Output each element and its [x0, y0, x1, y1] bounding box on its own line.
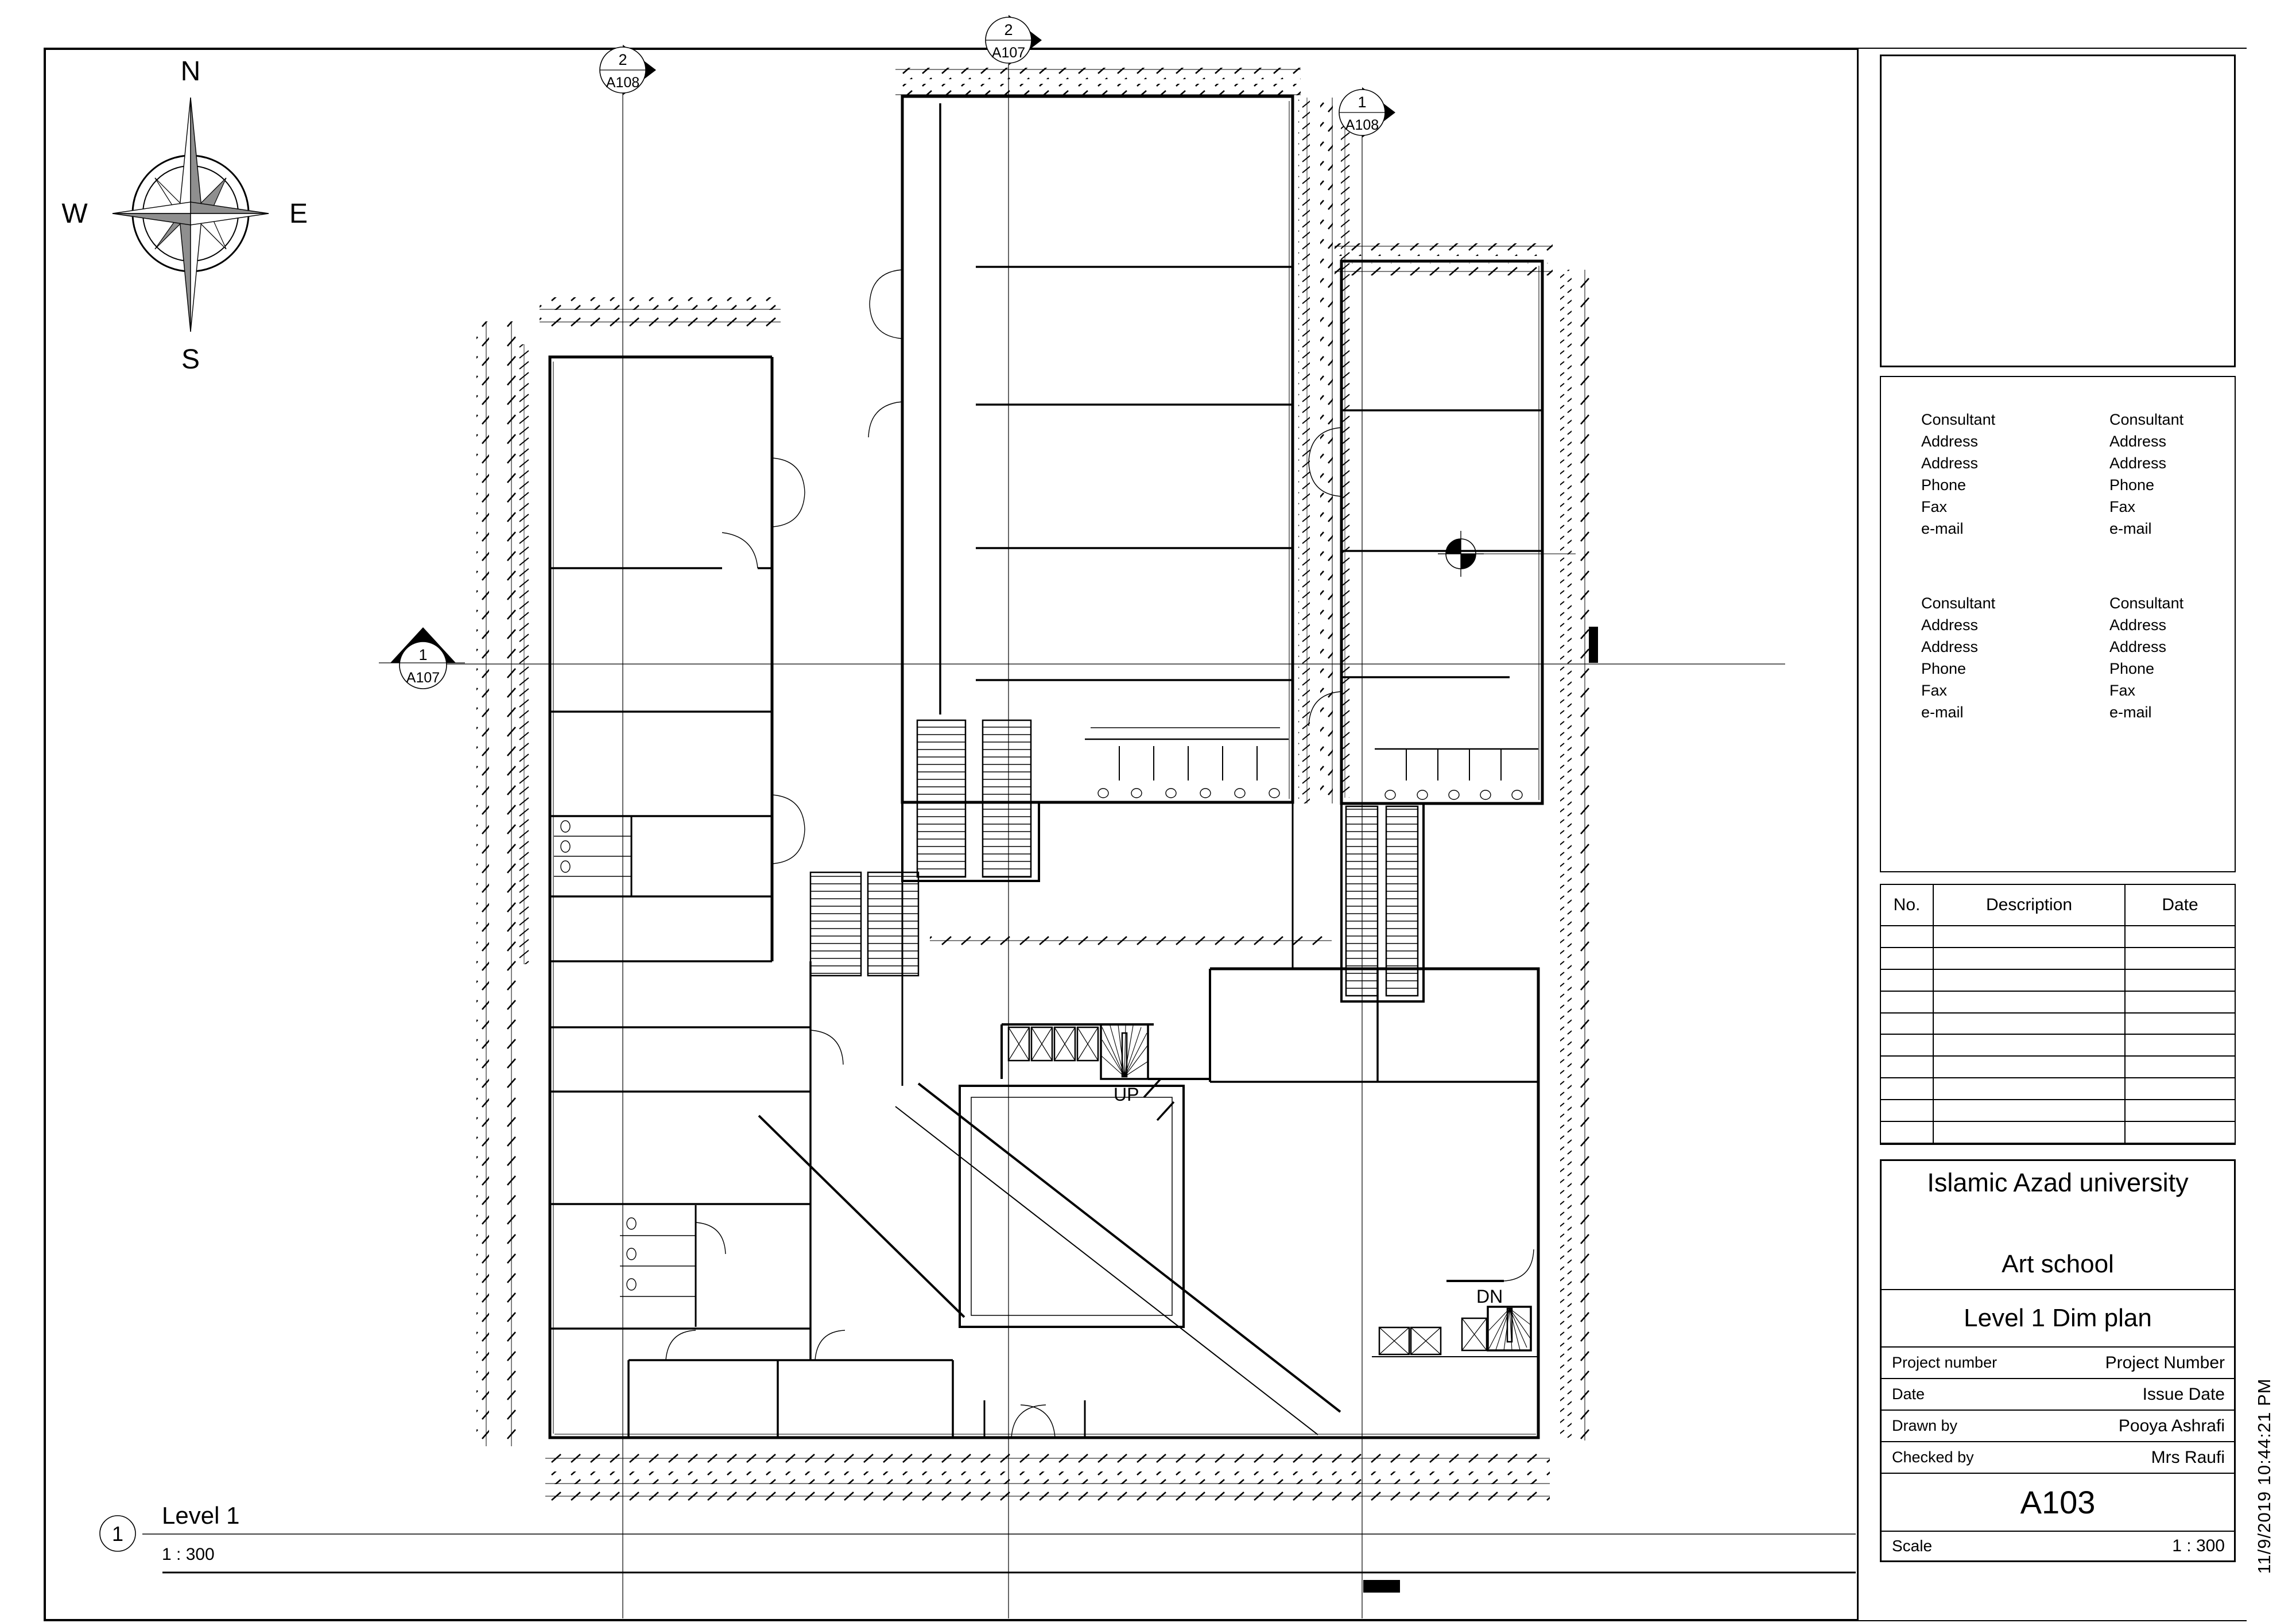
consultant-line: Address	[1921, 636, 2082, 658]
revision-empty-cell	[1881, 992, 1934, 1014]
title-block: Consultant Address Address Phone Fax e-m…	[1857, 49, 2247, 1620]
consultant-line: Address	[2109, 614, 2270, 636]
consultant-line: Fax	[1921, 496, 2082, 518]
revision-empty-cell	[1881, 970, 1934, 992]
dimension-strings	[476, 68, 1592, 1504]
consultant-line: Consultant	[2109, 409, 2270, 430]
consultant-line: Phone	[1921, 658, 2082, 680]
section-marker-top-left[interactable]: 2 A108	[600, 45, 656, 95]
marker-detail-number: 1	[1358, 94, 1366, 111]
sheet-number: A103	[1882, 1474, 2234, 1532]
revision-empty-cell	[1881, 1035, 1934, 1057]
section-marker-top-right[interactable]: 1 A108	[1339, 87, 1395, 138]
view-title: 1 Level 1 1 : 300	[100, 1502, 1856, 1564]
revision-empty-cell	[1881, 1014, 1934, 1035]
consultant-line: Fax	[2109, 680, 2270, 701]
revision-empty-cell	[2126, 970, 2235, 992]
compass-rose: N S W E	[61, 56, 308, 375]
marker-sheet-number: A107	[406, 670, 440, 686]
revision-empty-cell	[1934, 948, 2126, 970]
consultant-line: Address	[1921, 430, 2082, 452]
revision-empty-cell	[1881, 1057, 1934, 1078]
consultant-line: Consultant	[1921, 592, 2082, 614]
stair-dn-label: DN	[1476, 1286, 1503, 1307]
revision-empty-cell	[1934, 926, 2126, 948]
logo-box	[1880, 55, 2236, 367]
revision-empty-cell	[2126, 926, 2235, 948]
revision-empty-cell	[1934, 1078, 2126, 1100]
marker-detail-number: 1	[418, 646, 427, 663]
revision-empty-cell	[1934, 1035, 2126, 1057]
consultant-box: Consultant Address Address Phone Fax e-m…	[1880, 376, 2236, 872]
scale-label: Scale	[1882, 1537, 1932, 1555]
revision-empty-cell	[1934, 1100, 2126, 1122]
consultant-line: Address	[1921, 452, 2082, 474]
revision-empty-cell	[2126, 1035, 2235, 1057]
marker-sheet-number: A108	[606, 75, 639, 91]
revision-empty-cell	[2126, 1100, 2235, 1122]
section-marker-left[interactable]: 1 A107	[379, 627, 465, 689]
compass-east-label: E	[289, 199, 308, 229]
consultant-line: Phone	[2109, 474, 2270, 496]
revision-empty-cell	[1934, 1122, 2126, 1144]
revision-col-description: Description	[1934, 885, 2126, 926]
project-info-box: Islamic Azad university Art school Level…	[1880, 1159, 2236, 1562]
revision-empty-cell	[1881, 1122, 1934, 1144]
compass-south-label: S	[181, 344, 200, 375]
consultant-block: Consultant Address Address Phone Fax e-m…	[2109, 592, 2270, 723]
revision-empty-cell	[1881, 1100, 1934, 1122]
compass-north-label: N	[181, 56, 201, 87]
consultant-line: Phone	[2109, 658, 2270, 680]
consultant-line: e-mail	[2109, 701, 2270, 723]
revision-empty-cell	[2126, 992, 2235, 1014]
scale-row: Scale 1 : 300	[1882, 1532, 2234, 1560]
consultant-line: Consultant	[1921, 409, 2082, 430]
scale-value: 1 : 300	[2172, 1536, 2234, 1556]
revision-empty-cell	[1934, 992, 2126, 1014]
project-name: Art school	[1882, 1250, 2234, 1279]
view-scale: 1 : 300	[162, 1545, 215, 1564]
revision-empty-cell	[2126, 1122, 2235, 1144]
sheet-name: Level 1 Dim plan	[1882, 1290, 2234, 1348]
consultant-line: Address	[2109, 430, 2270, 452]
consultant-line: Consultant	[2109, 592, 2270, 614]
field-value: Project Number	[2105, 1353, 2234, 1373]
section-marker-top-center[interactable]: 2 A107	[986, 15, 1042, 65]
winder-stairs	[1101, 1024, 1531, 1350]
consultant-line: Address	[2109, 636, 2270, 658]
revision-empty-cell	[1881, 948, 1934, 970]
consultant-line: e-mail	[1921, 518, 2082, 539]
stair-up-label: UP	[1114, 1084, 1139, 1105]
survey-point-symbol	[1438, 531, 1576, 577]
project-number-row: Project number Project Number	[1882, 1348, 2234, 1379]
consultant-line: Fax	[2109, 496, 2270, 518]
revision-empty-cell	[2126, 1057, 2235, 1078]
consultant-line: Fax	[1921, 680, 2082, 701]
match-line-block-right	[1589, 627, 1598, 663]
consultant-block: Consultant Address Address Phone Fax e-m…	[1921, 592, 2082, 723]
revision-empty-cell	[1934, 1057, 2126, 1078]
consultant-line: e-mail	[1921, 701, 2082, 723]
date-row: Date Issue Date	[1882, 1379, 2234, 1411]
consultant-block: Consultant Address Address Phone Fax e-m…	[1921, 409, 2082, 539]
elevator-shafts	[1009, 1027, 1487, 1354]
drawn-by-row: Drawn by Pooya Ashrafi	[1882, 1411, 2234, 1442]
client-name: Islamic Azad university	[1882, 1168, 2234, 1198]
consultant-line: Phone	[1921, 474, 2082, 496]
revision-col-no: No.	[1881, 885, 1934, 926]
view-number: 1	[112, 1522, 123, 1546]
field-label: Checked by	[1882, 1449, 1974, 1466]
field-value: Pooya Ashrafi	[2119, 1416, 2234, 1436]
field-label: Date	[1882, 1385, 1925, 1403]
match-line-block-bottom	[1363, 1580, 1400, 1593]
marker-detail-number: 2	[1004, 21, 1013, 38]
checked-by-row: Checked by Mrs Raufi	[1882, 1442, 2234, 1474]
revision-table: No. Description Date	[1880, 884, 2236, 1145]
consultant-line: Address	[1921, 614, 2082, 636]
field-value: Issue Date	[2143, 1385, 2234, 1404]
revision-empty-cell	[1881, 1078, 1934, 1100]
client-section: Islamic Azad university Art school	[1882, 1161, 2234, 1290]
revision-empty-cell	[2126, 948, 2235, 970]
marker-detail-number: 2	[618, 51, 627, 68]
consultant-block: Consultant Address Address Phone Fax e-m…	[2109, 409, 2270, 539]
compass-west-label: W	[61, 199, 88, 229]
field-label: Drawn by	[1882, 1417, 1957, 1435]
consultant-line: Address	[2109, 452, 2270, 474]
field-value: Mrs Raufi	[2151, 1448, 2234, 1467]
marker-sheet-number: A108	[1345, 117, 1379, 133]
field-label: Project number	[1882, 1354, 1997, 1372]
consultant-line: e-mail	[2109, 518, 2270, 539]
revision-col-date: Date	[2126, 885, 2235, 926]
view-name: Level 1	[162, 1502, 239, 1529]
sheet: N S W E	[0, 0, 2296, 1623]
marker-sheet-number: A107	[992, 45, 1025, 61]
revision-empty-cell	[1934, 1014, 2126, 1035]
print-timestamp: 11/9/2019 10:44:21 PM	[2254, 1378, 2275, 1574]
revision-empty-cell	[1881, 926, 1934, 948]
revision-empty-cell	[1934, 970, 2126, 992]
revision-empty-cell	[2126, 1078, 2235, 1100]
revision-empty-cell	[2126, 1014, 2235, 1035]
